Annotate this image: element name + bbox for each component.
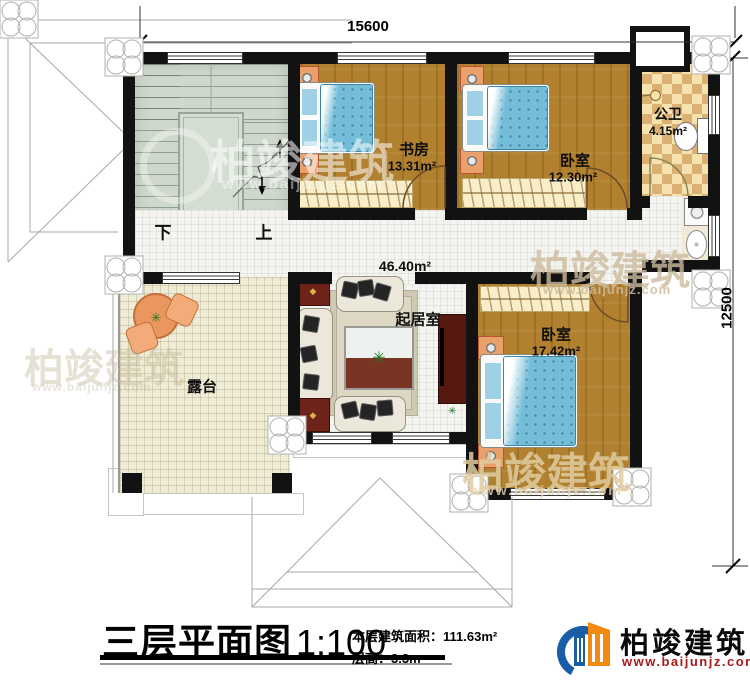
wall bbox=[688, 196, 708, 208]
coffee-table: ✳ bbox=[344, 326, 414, 390]
wall bbox=[450, 432, 478, 444]
sofa-cushion bbox=[359, 403, 377, 421]
brand-logo-icon bbox=[554, 616, 616, 680]
window bbox=[162, 272, 240, 284]
wall bbox=[427, 52, 508, 64]
wall bbox=[642, 196, 650, 208]
wall bbox=[293, 432, 312, 444]
floor-plan: ✳ ◆ ◆ ✳ ✳ bbox=[0, 0, 750, 693]
wall-right-exterior bbox=[708, 52, 720, 95]
window bbox=[708, 215, 720, 257]
wall bbox=[293, 208, 415, 220]
window bbox=[337, 52, 427, 64]
wall bbox=[630, 52, 642, 220]
plant-icon: ✳ bbox=[372, 351, 385, 367]
study-bed-pillow bbox=[301, 88, 318, 116]
stair-landing-inner bbox=[183, 117, 239, 221]
wall bbox=[445, 64, 457, 220]
bedroom-top-duvet bbox=[487, 86, 548, 150]
sofa-cushion bbox=[302, 373, 320, 391]
wall bbox=[288, 272, 300, 444]
brand-url: www.baijunjz.com bbox=[622, 654, 750, 669]
study-bed-pillow bbox=[301, 119, 318, 147]
stair-treads-right bbox=[243, 122, 288, 220]
window bbox=[708, 95, 720, 135]
wall bbox=[288, 64, 300, 220]
study-bed-duvet bbox=[320, 84, 373, 152]
room-label-bedroom-top: 卧室 bbox=[560, 150, 590, 171]
drawing-scale: 1:100 bbox=[296, 622, 386, 664]
window bbox=[167, 52, 243, 64]
room-area-bedroom-top: 12.30m² bbox=[549, 170, 597, 185]
wash-basin bbox=[686, 230, 707, 259]
room-label-bedroom-right: 卧室 bbox=[541, 324, 571, 345]
window bbox=[508, 52, 595, 64]
study-wardrobe bbox=[297, 180, 413, 208]
room-label-bathroom: 公卫 bbox=[654, 104, 682, 124]
wall bbox=[118, 272, 162, 284]
stair-down-label: 下 bbox=[155, 219, 172, 244]
chimney-box bbox=[630, 26, 690, 72]
bedroom-top-pillow bbox=[466, 90, 484, 117]
room-label-living: 起居室 bbox=[395, 309, 440, 330]
stair-treads-left bbox=[135, 64, 180, 220]
drawing-title: 三层平面图 1:100 bbox=[102, 612, 386, 666]
dimension-top: 15600 bbox=[347, 18, 389, 35]
room-area-living: 46.40m² bbox=[379, 258, 431, 274]
wall bbox=[478, 272, 590, 284]
room-area-study: 13.31m² bbox=[388, 159, 436, 174]
drawing-title-text: 三层平面图 bbox=[102, 612, 292, 666]
stair-up-label: 上 bbox=[256, 219, 273, 244]
sofa-cushion bbox=[300, 345, 319, 364]
side-table: ◆ bbox=[296, 398, 330, 432]
terrace-pillar bbox=[272, 473, 292, 493]
stair-landing bbox=[178, 112, 244, 226]
window bbox=[312, 432, 372, 444]
sofa-cushion bbox=[302, 315, 321, 334]
wall bbox=[642, 260, 720, 272]
wall-right-exterior bbox=[708, 135, 720, 215]
plant-icon: ✳ bbox=[151, 311, 162, 324]
wall-left-exterior bbox=[123, 52, 135, 284]
wall bbox=[466, 488, 510, 500]
bedroom-right-wardrobe bbox=[480, 286, 590, 312]
sofa-cushion bbox=[376, 399, 393, 416]
wall bbox=[466, 284, 478, 500]
bath-lamp bbox=[650, 90, 661, 101]
wall bbox=[627, 208, 642, 220]
room-label-terrace: 露台 bbox=[187, 376, 217, 397]
wall bbox=[605, 488, 642, 500]
bedroom-top-pillow bbox=[466, 119, 484, 146]
wall bbox=[372, 432, 392, 444]
room-area-bedroom-right: 17.42m² bbox=[532, 344, 580, 359]
window bbox=[392, 432, 450, 444]
wall bbox=[630, 272, 642, 500]
bedroom-right-duvet bbox=[503, 356, 576, 446]
room-label-study: 书房 bbox=[399, 139, 429, 160]
room-area-bathroom: 4.15m² bbox=[649, 124, 687, 138]
bedroom-right-pillow bbox=[484, 402, 502, 440]
wall bbox=[243, 52, 337, 64]
terrace-pillar bbox=[122, 473, 142, 493]
tv-screen bbox=[440, 328, 444, 386]
small-plant-icon: ✳ bbox=[448, 407, 456, 417]
porch-threshold-trim bbox=[293, 444, 467, 458]
dimension-right: 12500 bbox=[719, 287, 736, 329]
wall bbox=[457, 208, 587, 220]
bedroom-right-pillow bbox=[484, 362, 502, 400]
window bbox=[510, 488, 605, 500]
